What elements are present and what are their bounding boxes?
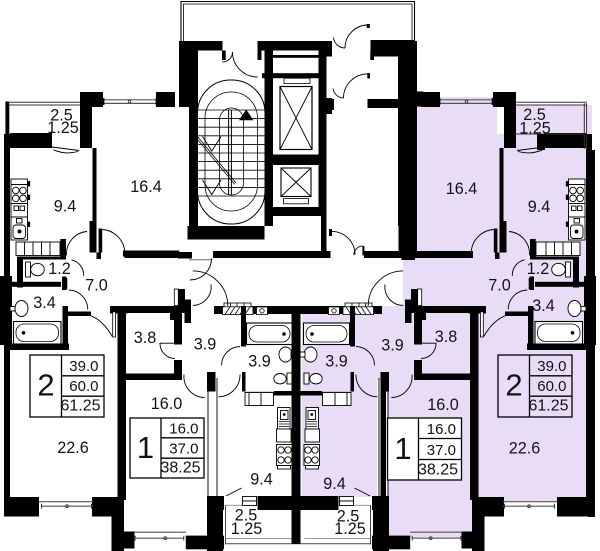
svg-text:3.9: 3.9 (248, 352, 271, 370)
svg-text:7.0: 7.0 (85, 276, 108, 294)
svg-text:1.25: 1.25 (231, 520, 263, 538)
svg-text:61.25: 61.25 (60, 398, 100, 415)
svg-text:3.9: 3.9 (325, 352, 348, 370)
svg-text:1.2: 1.2 (48, 260, 71, 278)
svg-text:39.0: 39.0 (69, 358, 98, 375)
svg-text:16.0: 16.0 (169, 421, 198, 438)
svg-text:1: 1 (394, 431, 411, 466)
svg-text:16.4: 16.4 (130, 178, 162, 196)
svg-text:3.4: 3.4 (33, 294, 56, 312)
svg-text:3.4: 3.4 (532, 297, 555, 315)
svg-text:37.0: 37.0 (427, 442, 456, 459)
svg-text:9.4: 9.4 (250, 470, 273, 488)
svg-text:2: 2 (505, 368, 522, 403)
svg-text:22.6: 22.6 (509, 439, 541, 457)
svg-text:16.0: 16.0 (427, 396, 459, 414)
svg-text:1.25: 1.25 (519, 119, 551, 137)
svg-text:16.0: 16.0 (427, 421, 456, 438)
svg-text:22.6: 22.6 (57, 439, 89, 457)
svg-text:9.4: 9.4 (528, 198, 551, 216)
svg-text:61.25: 61.25 (528, 398, 568, 415)
svg-text:7.0: 7.0 (488, 276, 511, 294)
svg-text:38.25: 38.25 (418, 462, 458, 479)
svg-text:16.0: 16.0 (151, 395, 183, 413)
svg-text:3.9: 3.9 (381, 336, 404, 354)
svg-text:9.4: 9.4 (54, 197, 77, 215)
svg-text:38.25: 38.25 (160, 460, 200, 477)
svg-text:3.9: 3.9 (194, 335, 217, 353)
svg-text:1.25: 1.25 (334, 520, 366, 538)
svg-text:16.4: 16.4 (446, 180, 478, 198)
svg-text:3.8: 3.8 (435, 328, 458, 346)
svg-text:60.0: 60.0 (69, 378, 98, 395)
svg-text:1.2: 1.2 (527, 260, 550, 278)
svg-text:2: 2 (37, 368, 54, 403)
svg-text:39.0: 39.0 (537, 358, 566, 375)
svg-text:1.25: 1.25 (47, 119, 79, 137)
svg-text:1: 1 (137, 430, 154, 465)
svg-text:9.4: 9.4 (323, 475, 346, 493)
svg-text:37.0: 37.0 (169, 441, 198, 458)
svg-text:60.0: 60.0 (537, 378, 566, 395)
svg-text:3.8: 3.8 (134, 329, 157, 347)
